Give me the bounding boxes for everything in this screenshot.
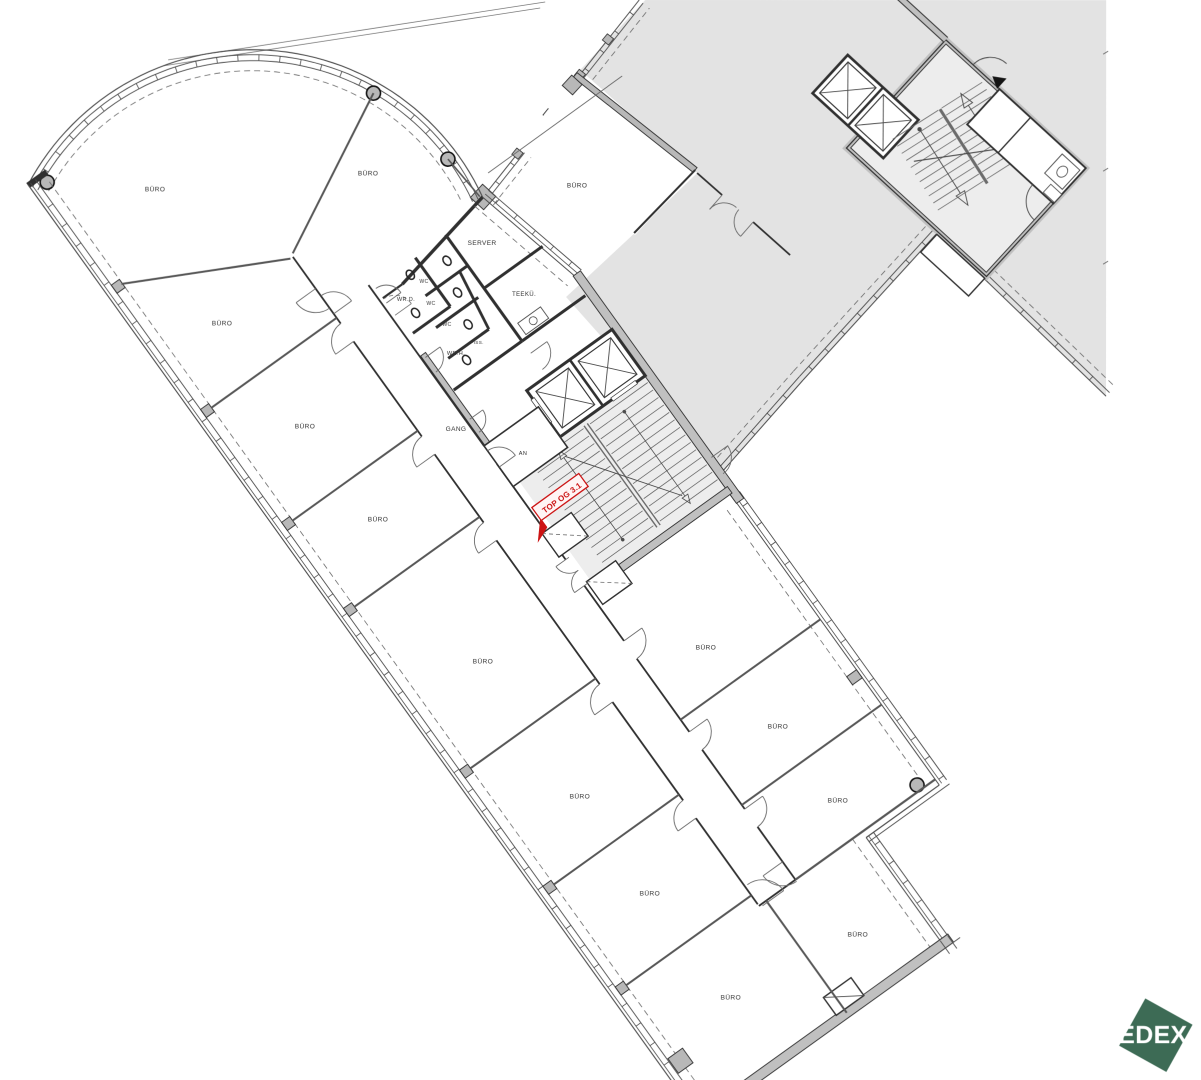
svg-text:BÜRO: BÜRO <box>567 181 587 189</box>
svg-text:PISS.: PISS. <box>470 340 484 345</box>
svg-text:BÜRO: BÜRO <box>768 723 788 731</box>
svg-text:BÜRO: BÜRO <box>721 994 741 1002</box>
svg-text:TEEKÜ.: TEEKÜ. <box>512 291 536 298</box>
svg-text:BÜRO: BÜRO <box>368 515 388 523</box>
svg-text:WR.H.: WR.H. <box>447 351 465 357</box>
svg-text:BÜRO: BÜRO <box>696 644 716 652</box>
svg-text:WC: WC <box>443 322 452 328</box>
svg-text:BÜRO: BÜRO <box>145 185 165 193</box>
svg-text:AN: AN <box>519 451 527 457</box>
svg-text:BÜRO: BÜRO <box>848 931 868 939</box>
svg-text:EDEX: EDEX <box>1118 1021 1187 1049</box>
svg-text:WR.D.: WR.D. <box>397 297 415 303</box>
svg-text:BÜRO: BÜRO <box>358 169 378 177</box>
svg-text:BÜRO: BÜRO <box>473 657 493 665</box>
svg-text:BÜRO: BÜRO <box>828 797 848 805</box>
svg-text:BÜRO: BÜRO <box>212 319 232 327</box>
svg-text:WC: WC <box>427 301 436 307</box>
svg-text:SERVER: SERVER <box>468 240 497 247</box>
svg-text:BÜRO: BÜRO <box>640 890 660 898</box>
svg-text:BÜRO: BÜRO <box>570 792 590 800</box>
svg-text:BÜRO: BÜRO <box>295 422 315 430</box>
svg-text:GANG: GANG <box>446 426 467 433</box>
svg-text:WC: WC <box>420 279 429 285</box>
